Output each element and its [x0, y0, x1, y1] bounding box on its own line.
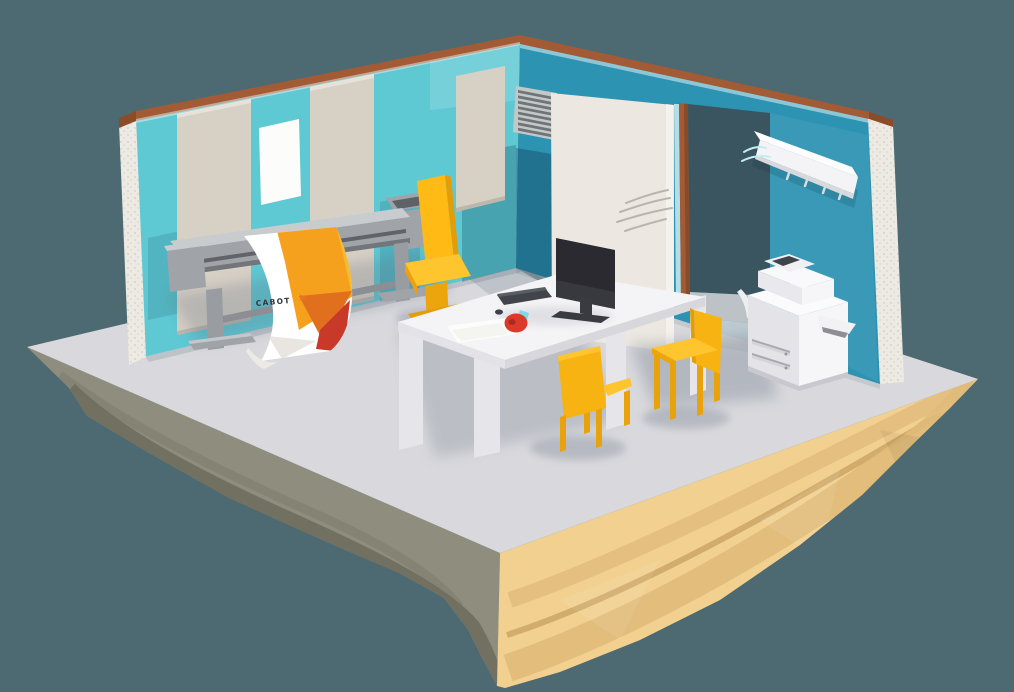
plotter-left-cap [167, 246, 206, 292]
chair1-leg-front-left [560, 415, 566, 452]
wall-paper-sheet [259, 119, 301, 205]
chair1-leg-front-right [596, 408, 602, 448]
tape-hole [509, 319, 516, 325]
chair1-leg-back-right [624, 390, 630, 426]
copier-body-right [799, 302, 848, 386]
chair2-leg-mid [697, 360, 703, 416]
mouse [495, 309, 503, 314]
wall-panel-3 [456, 66, 505, 212]
chair1-floor-shadow [530, 436, 626, 460]
vent-grille [513, 86, 557, 140]
illustration-stage: CABOT [0, 0, 1014, 692]
chair2-leg-front-right [670, 361, 676, 420]
office-room-illustration: CABOT [0, 0, 1014, 692]
chair2-floor-shadow [642, 407, 730, 429]
monitor-neck [580, 296, 592, 316]
chair2-leg-front-left [654, 353, 660, 410]
tape-body [505, 314, 528, 333]
desk-leg-left [399, 323, 423, 450]
